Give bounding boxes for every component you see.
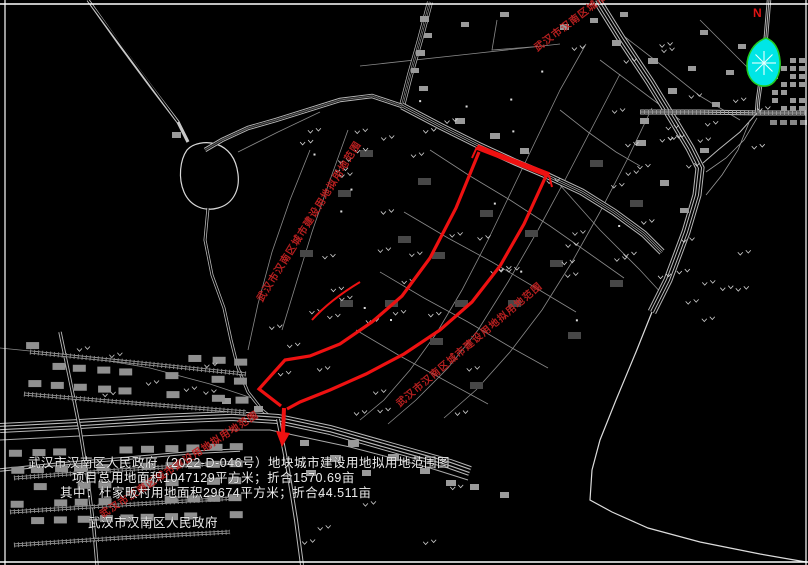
cad-map-viewport: 武汉市汉南区城市建设用地拟用地范围 武汉市汉南区城市建设用地拟用地范围 武汉市汉… <box>0 0 808 565</box>
issuer-signature: 武汉市汉南区人民政府 <box>88 512 218 531</box>
north-indicator: N <box>753 6 762 20</box>
village-area-text: 其中：杜家畈村用地面积29674平方米；折合44.511亩 <box>60 482 372 501</box>
